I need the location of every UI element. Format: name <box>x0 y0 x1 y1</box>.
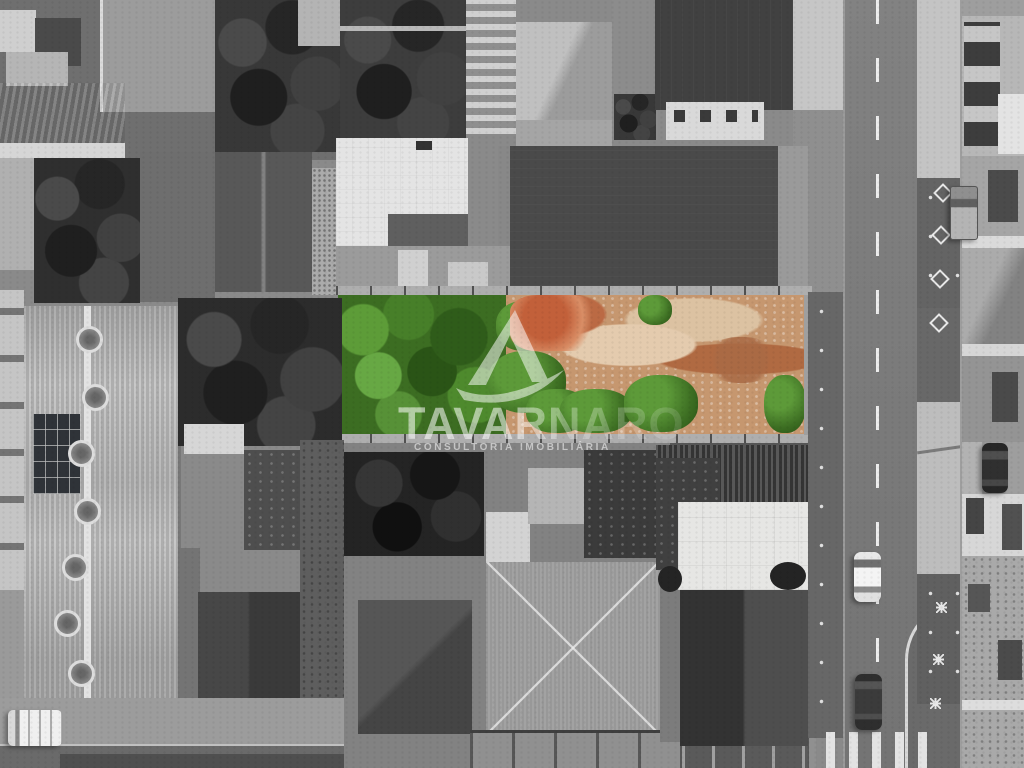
yard-right-end <box>778 146 808 294</box>
pavement-star-mark <box>930 698 941 709</box>
lot-bush <box>638 295 672 325</box>
roof-vent-fan <box>54 610 81 637</box>
right-dark-roof-a <box>988 170 1018 222</box>
right-white-gable <box>998 94 1024 154</box>
roof-dark-house <box>215 152 312 292</box>
right-dark-roof-b <box>992 372 1018 422</box>
building-edge-lower <box>0 590 24 700</box>
right-white-band-b <box>962 344 1024 356</box>
watermark-tagline: CONSULTORIA IMOBILIÁRIA <box>414 442 611 453</box>
roof-dark-ne <box>584 450 662 558</box>
roof-dark-gable-center <box>358 600 472 734</box>
aerial-photo: TAVARNARO CONSULTORIA IMOBILIÁRIA <box>0 0 1024 768</box>
roof-small-light <box>6 52 68 86</box>
right-white-band-c <box>962 700 1024 710</box>
roof-notch-gray <box>388 214 468 246</box>
roof-vent-fan <box>82 384 109 411</box>
roof-vents-row <box>674 110 758 122</box>
bush-dark <box>658 566 682 592</box>
roof-gable-house <box>516 22 612 120</box>
roof-hip-gray-house <box>486 562 660 734</box>
roof-corner-light <box>298 0 340 46</box>
path-gray <box>516 120 612 146</box>
courtyard-light <box>528 468 584 524</box>
roof-small-white <box>0 10 36 52</box>
roof-hatch-dark <box>416 141 432 150</box>
shed-white-2 <box>486 512 530 564</box>
lot-brown-soil-patch <box>706 337 776 383</box>
right-dark-patch-a <box>968 584 990 612</box>
roof-vent-fan <box>74 498 101 525</box>
trees-below-lot <box>344 452 484 556</box>
wall-white-strip <box>0 143 125 158</box>
right-dark-roof-d <box>1002 504 1022 550</box>
concrete-yard-top-right <box>793 0 843 110</box>
garden-wall <box>340 26 466 31</box>
pavement-star-mark <box>936 602 947 613</box>
sail-monogram-icon <box>452 308 570 406</box>
pavement-star-mark <box>933 654 944 665</box>
parked-dark-car <box>982 443 1008 493</box>
right-dark-patch-b <box>998 640 1022 680</box>
garden-dark <box>340 0 466 143</box>
yard-gray <box>140 152 215 302</box>
warehouse-roof <box>24 306 181 698</box>
crosswalk-zebra <box>826 732 940 768</box>
roof-big-hip-dark <box>510 146 778 288</box>
lot-top-wall <box>336 286 812 295</box>
bush-dark <box>770 562 806 590</box>
tree-blob <box>614 94 656 140</box>
roof-vent-fan <box>68 660 95 687</box>
bottom-wall-dark <box>60 754 346 768</box>
shed-white <box>184 424 244 454</box>
sidewalk-concrete-mid <box>917 402 965 576</box>
watermark-logo <box>452 308 570 406</box>
right-roof-diagonal <box>962 248 1024 356</box>
roof-dark-gable-right <box>680 590 808 746</box>
roof-vent-fan <box>62 554 89 581</box>
roof-vent-fan <box>68 440 95 467</box>
dark-car <box>855 674 882 730</box>
white-car <box>854 552 881 602</box>
street-center-dashed-line <box>876 0 879 736</box>
roof-diagonal-light <box>0 83 125 145</box>
pickup-truck <box>950 186 978 240</box>
trees-left-yard <box>34 158 140 303</box>
roof-striped-left <box>0 158 34 270</box>
sidewalk-left-dark <box>808 292 843 738</box>
building-edge-strip <box>0 290 24 590</box>
roof-striped-center <box>466 0 516 134</box>
roof-vent-fan <box>76 326 103 353</box>
white-van <box>8 710 62 746</box>
lot-bush <box>764 375 806 433</box>
right-dark-roof-c <box>966 498 984 534</box>
fence-bottom-right <box>682 746 808 768</box>
roof-large-dark <box>655 0 793 110</box>
right-roof-tile-array <box>964 22 1000 146</box>
